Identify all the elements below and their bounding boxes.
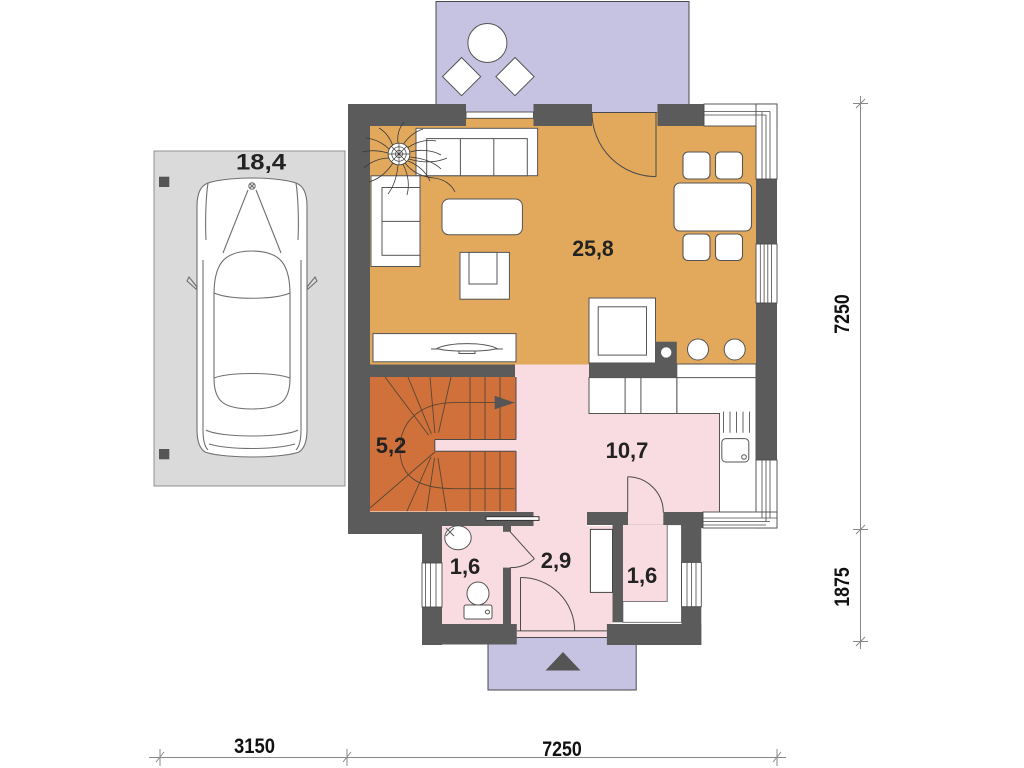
- svg-text:7250: 7250: [831, 294, 854, 334]
- svg-text:10,7: 10,7: [606, 438, 649, 463]
- svg-text:3150: 3150: [234, 735, 275, 758]
- svg-text:1,6: 1,6: [627, 563, 658, 588]
- svg-text:18,4: 18,4: [236, 150, 287, 175]
- svg-text:1875: 1875: [831, 567, 854, 607]
- svg-text:25,8: 25,8: [572, 236, 614, 261]
- svg-text:1,6: 1,6: [450, 554, 481, 579]
- svg-text:5,2: 5,2: [376, 433, 407, 458]
- svg-text:7250: 7250: [542, 738, 582, 761]
- svg-text:2,9: 2,9: [541, 548, 572, 573]
